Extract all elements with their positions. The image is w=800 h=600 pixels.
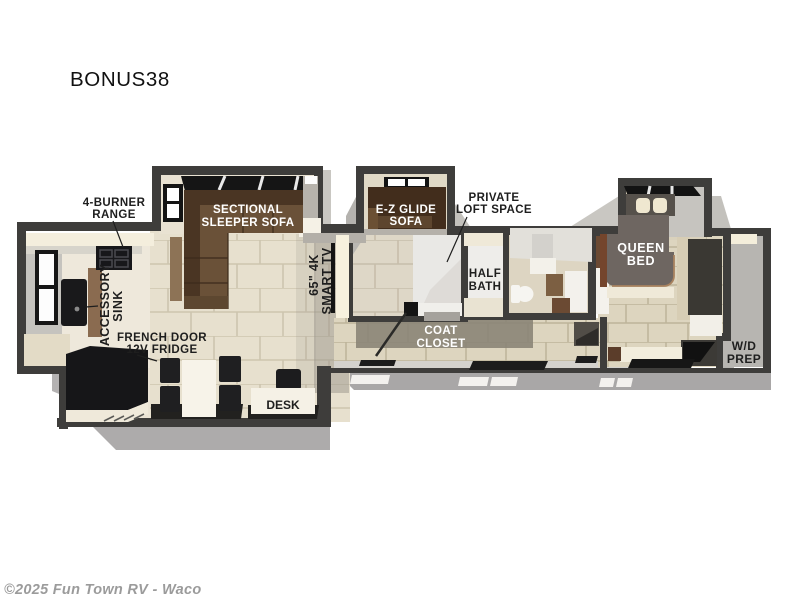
svg-text:SINK: SINK — [111, 290, 125, 321]
svg-text:COAT: COAT — [424, 325, 457, 337]
svg-text:LOFT SPACE: LOFT SPACE — [456, 204, 532, 216]
svg-text:QUEEN: QUEEN — [617, 241, 664, 255]
svg-text:65" 4K: 65" 4K — [307, 254, 321, 296]
svg-text:4-BURNER: 4-BURNER — [83, 197, 146, 209]
svg-text:ACCESSORY: ACCESSORY — [98, 264, 112, 347]
svg-text:CLOSET: CLOSET — [416, 338, 465, 350]
svg-text:FRENCH DOOR: FRENCH DOOR — [117, 332, 207, 344]
svg-text:©2025 Fun Town RV - Waco: ©2025 Fun Town RV - Waco — [4, 582, 202, 598]
svg-text:E-Z GLIDE: E-Z GLIDE — [376, 204, 436, 216]
svg-text:PREP: PREP — [727, 352, 761, 366]
svg-text:BONUS38: BONUS38 — [70, 68, 170, 91]
svg-text:PRIVATE: PRIVATE — [469, 192, 520, 204]
svg-text:SECTIONAL: SECTIONAL — [213, 204, 283, 216]
svg-text:SMART TV: SMART TV — [320, 247, 334, 314]
svg-text:12V FRIDGE: 12V FRIDGE — [126, 344, 197, 356]
svg-text:BED: BED — [627, 254, 655, 268]
svg-text:SOFA: SOFA — [390, 216, 423, 228]
svg-text:DESK: DESK — [266, 398, 300, 412]
svg-text:BATH: BATH — [469, 281, 502, 293]
svg-text:W/D: W/D — [732, 339, 757, 353]
svg-text:SLEEPER SOFA: SLEEPER SOFA — [202, 217, 295, 229]
svg-text:HALF: HALF — [469, 268, 501, 280]
svg-text:RANGE: RANGE — [92, 209, 136, 221]
